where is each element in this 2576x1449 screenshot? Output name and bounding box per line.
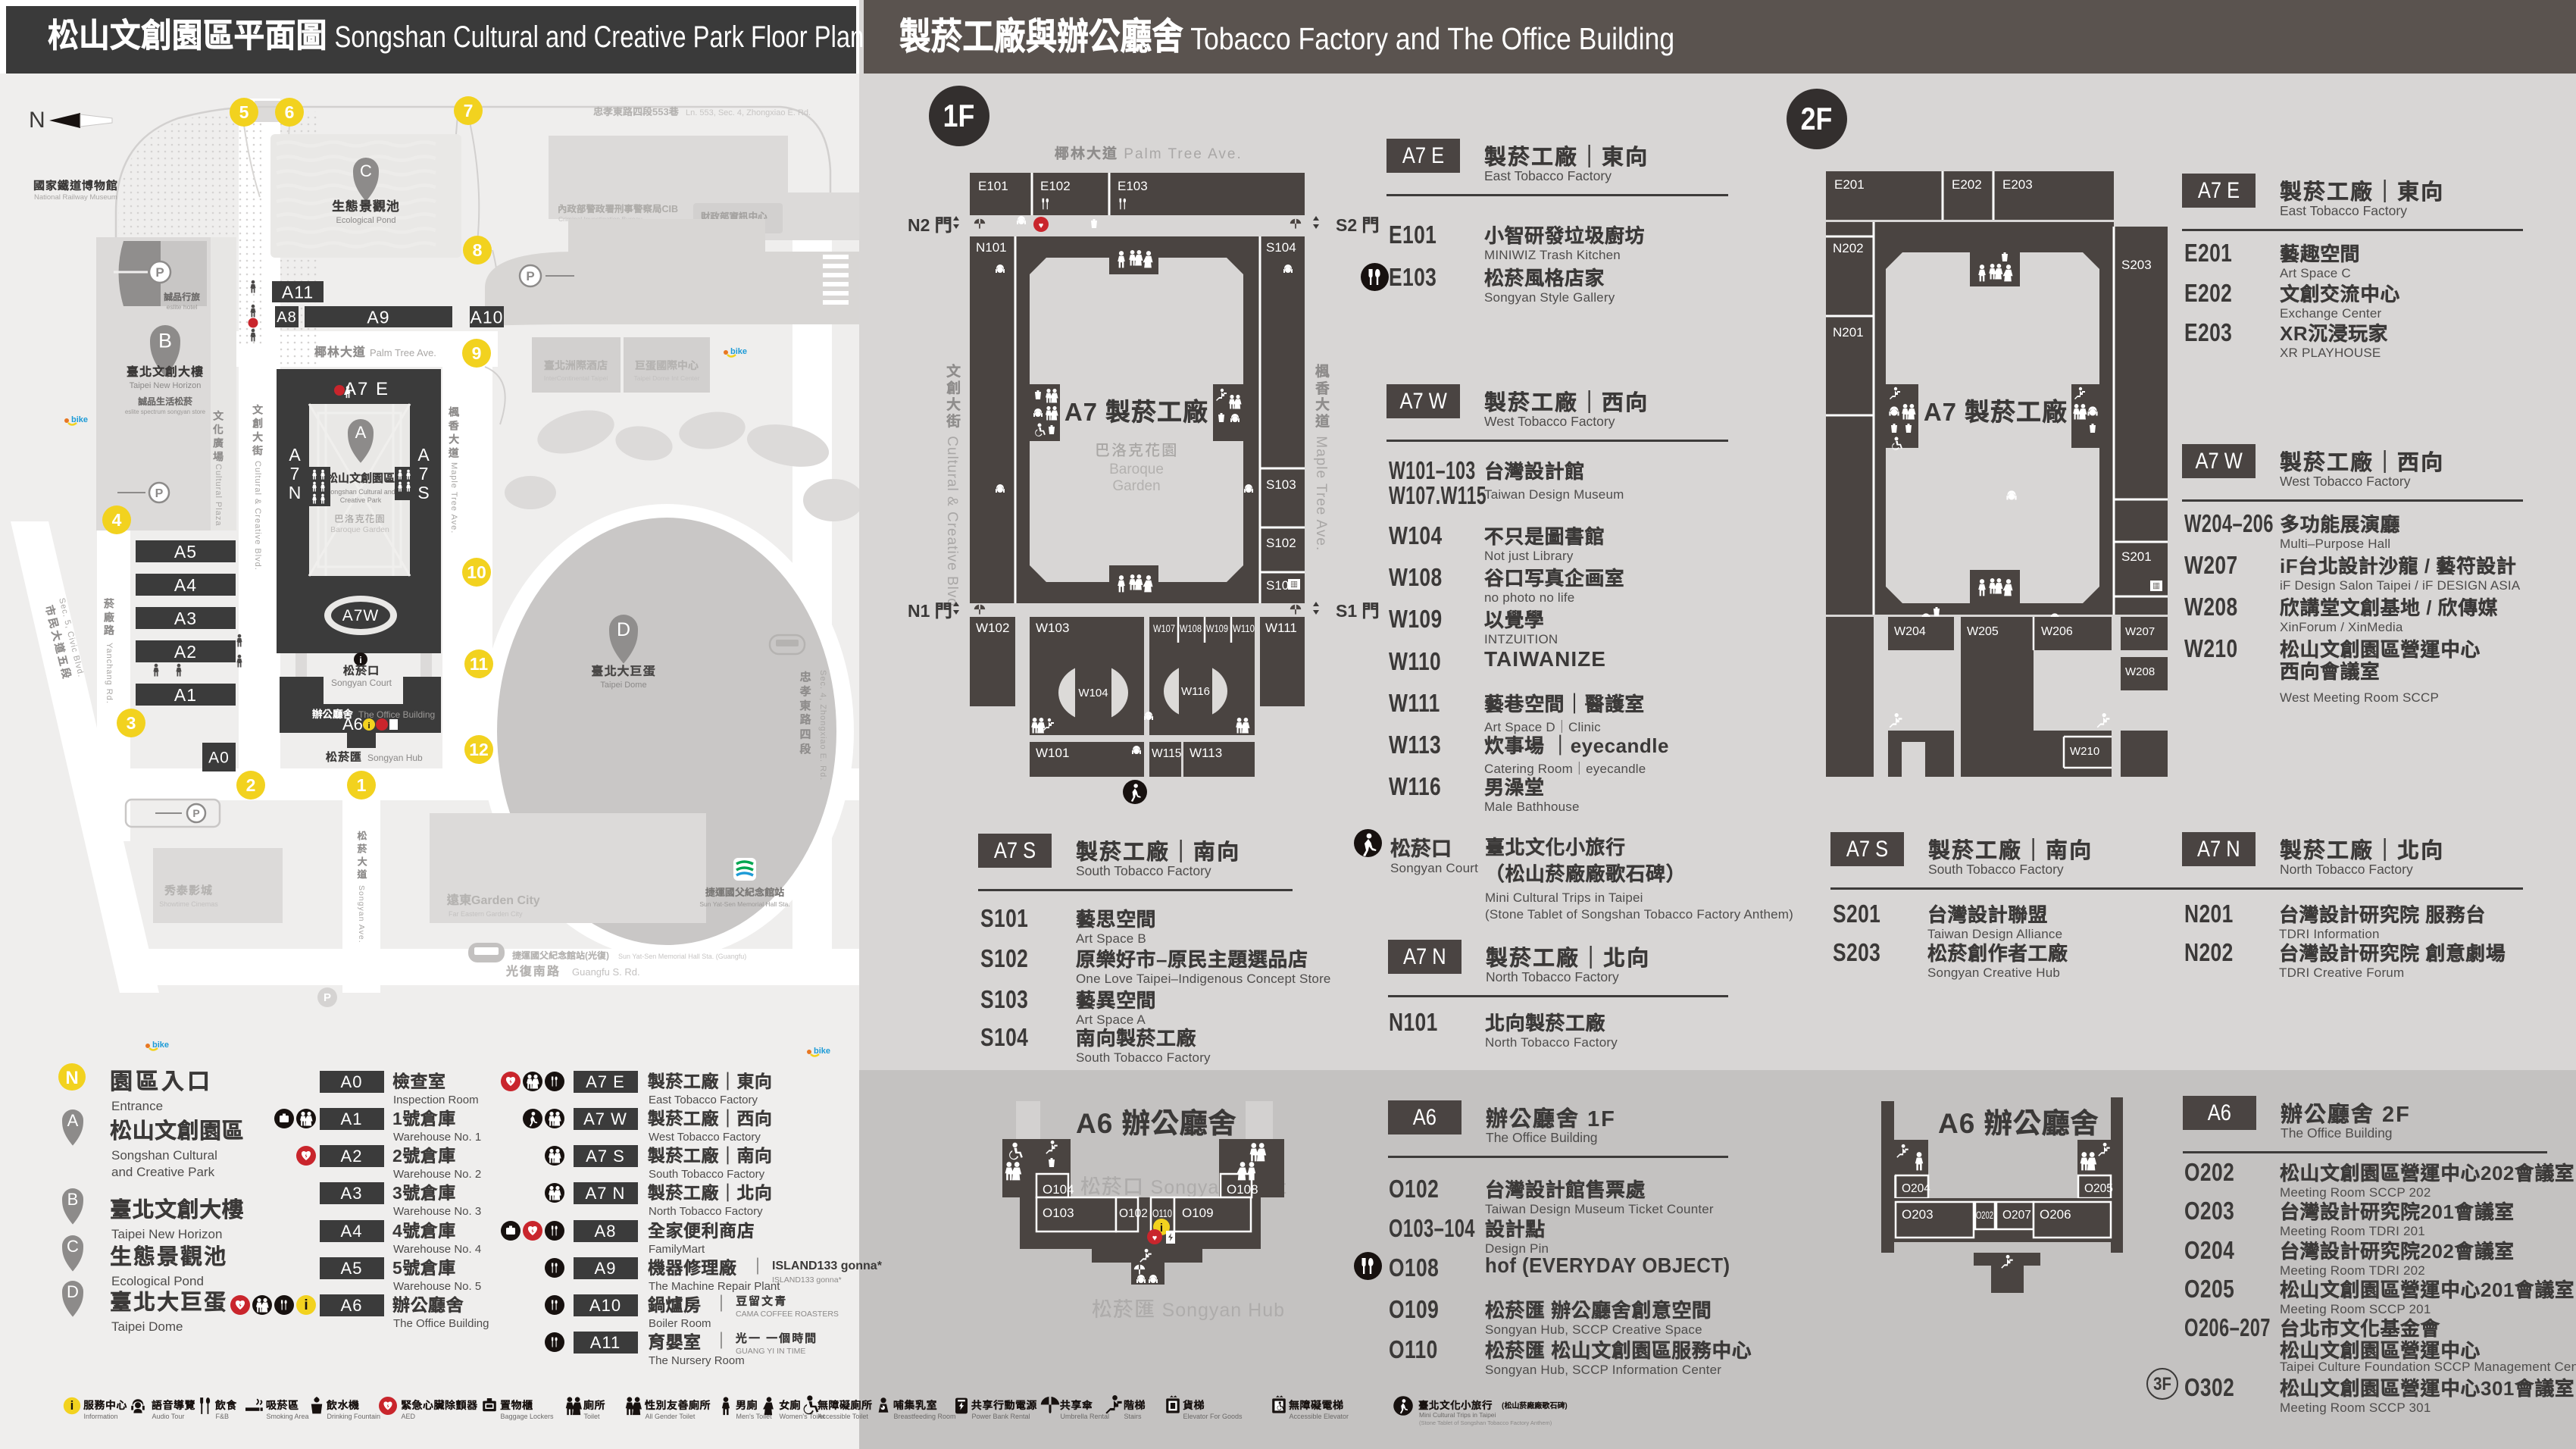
svg-text:E202: E202 <box>1952 177 1982 192</box>
svg-text:West Tobacco Factory: West Tobacco Factory <box>649 1131 761 1144</box>
svg-text:W207: W207 <box>2125 625 2155 638</box>
svg-text:製菸工廠｜南向: 製菸工廠｜南向 <box>647 1146 773 1166</box>
svg-text:Warehouse No. 5: Warehouse No. 5 <box>393 1280 481 1293</box>
svg-text:共享行動電源: 共享行動電源 <box>971 1399 1037 1411</box>
svg-text:North Tobacco Factory: North Tobacco Factory <box>649 1205 763 1218</box>
svg-text:S201: S201 <box>2121 549 2152 564</box>
svg-text:製菸工廠｜東向: 製菸工廠｜東向 <box>647 1072 773 1091</box>
svg-text:臺北大巨蛋: 臺北大巨蛋 <box>591 664 655 678</box>
svg-text:6: 6 <box>285 102 295 122</box>
svg-text:Boiler Room: Boiler Room <box>649 1317 711 1330</box>
svg-text:遠東Garden City: 遠東Garden City <box>447 893 540 907</box>
svg-text:E201: E201 <box>1834 177 1865 192</box>
svg-text:Maple Tree Ave.: Maple Tree Ave. <box>449 462 458 534</box>
svg-text:菸廠路: 菸廠路 <box>103 597 115 638</box>
svg-text:N201: N201 <box>1833 325 1864 340</box>
svg-text:The Office Building: The Office Building <box>358 709 435 720</box>
svg-text:Warehouse No. 1: Warehouse No. 1 <box>393 1131 481 1144</box>
svg-text:i: i <box>304 1297 308 1313</box>
svg-text:W109: W109 <box>1206 622 1228 634</box>
svg-text:A: A <box>417 445 430 465</box>
svg-text:Ecological Pond: Ecological Pond <box>336 216 396 225</box>
svg-text:N202: N202 <box>1833 241 1864 255</box>
svg-text:臺北文創大樓: 臺北文創大樓 <box>127 365 204 379</box>
svg-text:Baggage Lockers: Baggage Lockers <box>501 1413 555 1420</box>
svg-text:A9: A9 <box>367 307 389 327</box>
svg-text:A10: A10 <box>589 1296 621 1315</box>
svg-text:文化廣場: 文化廣場 <box>212 409 224 464</box>
svg-text:The Office Building: The Office Building <box>393 1317 489 1330</box>
svg-text:(Stone Tablet of Songshan Toba: (Stone Tablet of Songshan Tobacco Factor… <box>1419 1419 1552 1426</box>
svg-text:Taipei Dome: Taipei Dome <box>600 681 646 690</box>
svg-text:廁所: 廁所 <box>583 1399 605 1411</box>
svg-text:飲水機: 飲水機 <box>326 1399 360 1411</box>
svg-text:2號倉庫: 2號倉庫 <box>392 1146 456 1166</box>
svg-text:N: N <box>65 1068 78 1088</box>
svg-text:松菸大道: 松菸大道 <box>356 830 368 881</box>
svg-text:bike: bike <box>152 1041 169 1050</box>
svg-text:E103: E103 <box>1118 179 1148 193</box>
svg-text:忠孝東路四段: 忠孝東路四段 <box>799 670 812 756</box>
svg-text:Taipei Dome Int Center: Taipei Dome Int Center <box>634 374 700 382</box>
svg-text:Songshan Cultural and: Songshan Cultural and <box>326 488 395 496</box>
svg-text:Information: Information <box>84 1413 118 1420</box>
svg-text:巴洛克花園: 巴洛克花園 <box>334 514 386 524</box>
svg-text:Audio Tour: Audio Tour <box>152 1413 185 1420</box>
svg-text:豆留文青: 豆留文青 <box>736 1294 787 1308</box>
svg-text:National Railway Museum: National Railway Museum <box>34 193 117 202</box>
svg-text:製菸工廠｜西向: 製菸工廠｜西向 <box>647 1109 773 1128</box>
svg-text:巴洛克花園: 巴洛克花園 <box>1095 443 1178 459</box>
svg-text:性別友善廁所: 性別友善廁所 <box>644 1399 711 1411</box>
svg-text:Elevator For Goods: Elevator For Goods <box>1183 1413 1243 1420</box>
svg-text:The Machine Repair Plant: The Machine Repair Plant <box>649 1280 780 1293</box>
svg-text:Umbrella Rental: Umbrella Rental <box>1061 1413 1110 1420</box>
svg-text:bike: bike <box>730 347 747 356</box>
svg-text:哺集乳室: 哺集乳室 <box>893 1399 937 1411</box>
svg-text:椰林大道: 椰林大道 <box>314 345 366 359</box>
svg-text:W102: W102 <box>976 621 1009 635</box>
svg-text:松菸匯: 松菸匯 <box>326 750 362 764</box>
svg-text:B: B <box>67 1190 79 1209</box>
svg-text:忠孝東路四段553巷: 忠孝東路四段553巷 <box>593 106 680 117</box>
svg-text:臺北大巨蛋: 臺北大巨蛋 <box>110 1291 227 1315</box>
svg-text:Breastfeeding Room: Breastfeeding Room <box>894 1413 956 1420</box>
svg-text:共享傘: 共享傘 <box>1060 1399 1093 1411</box>
svg-text:Ecological Pond: Ecological Pond <box>111 1274 204 1288</box>
svg-text:A7 製菸工廠: A7 製菸工廠 <box>1064 398 1208 426</box>
svg-text:9: 9 <box>472 343 482 363</box>
svg-text:1號倉庫: 1號倉庫 <box>392 1109 456 1128</box>
svg-text:Warehouse No. 4: Warehouse No. 4 <box>393 1243 481 1256</box>
svg-text:ISLAND133 gonna*: ISLAND133 gonna* <box>772 1260 883 1272</box>
svg-text:East Tobacco Factory: East Tobacco Factory <box>649 1094 758 1106</box>
svg-text:Showtime Cinemas: Showtime Cinemas <box>159 900 218 908</box>
svg-text:P: P <box>324 991 331 1004</box>
svg-text:S203: S203 <box>2121 258 2152 272</box>
svg-text:W110: W110 <box>1233 622 1255 634</box>
svg-text:Garden: Garden <box>1112 478 1160 494</box>
svg-text:松山文創園區: 松山文創園區 <box>110 1119 244 1144</box>
svg-text:W208: W208 <box>2125 665 2155 678</box>
svg-text:育嬰室: 育嬰室 <box>648 1332 702 1352</box>
svg-text:檢查室: 檢查室 <box>392 1072 446 1091</box>
svg-text:Warehouse No. 3: Warehouse No. 3 <box>393 1205 481 1218</box>
svg-text:N: N <box>29 108 45 133</box>
svg-text:▦: ▦ <box>1290 581 1298 590</box>
svg-text:Songshan Cultural: Songshan Cultural <box>111 1148 217 1163</box>
svg-text:製菸工廠｜北向: 製菸工廠｜北向 <box>647 1183 773 1203</box>
svg-text:InterContinental Taipei: InterContinental Taipei <box>544 374 608 382</box>
svg-text:Entrance: Entrance <box>111 1099 163 1113</box>
svg-text:and Creative Park: and Creative Park <box>111 1165 215 1179</box>
svg-text:A8: A8 <box>277 309 296 326</box>
svg-text:N101: N101 <box>976 240 1007 255</box>
svg-text:無障礙電梯: 無障礙電梯 <box>1289 1399 1344 1411</box>
svg-text:Ln. 553, Sec. 4, Zhongxiao E.: Ln. 553, Sec. 4, Zhongxiao E. Rd. <box>686 108 811 117</box>
svg-text:A2: A2 <box>341 1147 363 1166</box>
svg-text:W103: W103 <box>1036 621 1069 635</box>
svg-text:P: P <box>155 487 164 500</box>
svg-text:P: P <box>192 807 199 819</box>
svg-text:A7W: A7W <box>342 607 380 624</box>
svg-text:All Gender Toilet: All Gender Toilet <box>646 1413 696 1420</box>
svg-text:生態景觀池: 生態景觀池 <box>332 199 400 214</box>
svg-text:A9: A9 <box>595 1259 617 1278</box>
svg-text:女廁: 女廁 <box>779 1399 801 1411</box>
svg-text:1: 1 <box>357 775 367 795</box>
svg-text:鍋爐房: 鍋爐房 <box>647 1295 702 1315</box>
svg-text:捷運國父紀念館站(光復): 捷運國父紀念館站(光復) <box>512 950 609 961</box>
svg-text:5號倉庫: 5號倉庫 <box>392 1258 456 1278</box>
svg-text:A: A <box>289 445 301 465</box>
svg-text:內政部警政署刑事警察局CIB: 內政部警政署刑事警察局CIB <box>558 203 678 214</box>
svg-text:松菸口: 松菸口 <box>343 664 380 678</box>
svg-text:A4: A4 <box>174 575 197 595</box>
svg-text:Inspection Room: Inspection Room <box>393 1094 479 1106</box>
svg-text:A7 W: A7 W <box>583 1109 627 1128</box>
svg-text:巨蛋國際中心: 巨蛋國際中心 <box>635 359 699 371</box>
svg-text:W116: W116 <box>1181 685 1210 698</box>
svg-text:W204: W204 <box>1894 625 1926 638</box>
svg-text:FamilyMart: FamilyMart <box>649 1243 705 1256</box>
svg-text:N: N <box>289 483 302 502</box>
svg-text:The Nursery Room: The Nursery Room <box>649 1354 745 1367</box>
svg-text:S104: S104 <box>1266 240 1296 255</box>
svg-text:Taipei Dome: Taipei Dome <box>111 1319 183 1334</box>
svg-text:園區入口: 園區入口 <box>110 1069 213 1094</box>
svg-text:A7 S: A7 S <box>586 1147 625 1166</box>
svg-text:3號倉庫: 3號倉庫 <box>392 1183 456 1203</box>
svg-text:4: 4 <box>112 510 122 530</box>
svg-text:A5: A5 <box>341 1259 363 1278</box>
svg-text:A1: A1 <box>174 685 197 705</box>
svg-text:Songyan Court: Songyan Court <box>331 678 392 688</box>
svg-text:男廁: 男廁 <box>735 1399 758 1411</box>
svg-text:置物櫃: 置物櫃 <box>500 1399 533 1411</box>
svg-text:Guangfu S. Rd.: Guangfu S. Rd. <box>572 966 640 978</box>
svg-text:階梯: 階梯 <box>1124 1399 1146 1411</box>
svg-text:i: i <box>359 655 361 665</box>
svg-text:♥: ♥ <box>1039 221 1044 230</box>
svg-text:5: 5 <box>239 102 249 122</box>
svg-text:Creative Park: Creative Park <box>340 496 382 504</box>
svg-text:A6: A6 <box>341 1296 363 1315</box>
svg-text:｜: ｜ <box>749 1257 766 1276</box>
svg-text:誠品生活松菸: 誠品生活松菸 <box>137 396 193 407</box>
svg-text:i: i <box>70 1398 74 1413</box>
svg-text:W206: W206 <box>2041 625 2073 638</box>
svg-text:i: i <box>367 721 370 731</box>
svg-text:A11: A11 <box>282 282 314 302</box>
svg-text:GUANG YI IN TIME: GUANG YI IN TIME <box>736 1347 805 1356</box>
svg-text:Cultural Plaza: Cultural Plaza <box>214 464 223 526</box>
svg-text:Yanchang Rd.: Yanchang Rd. <box>105 643 114 704</box>
svg-text:A: A <box>67 1111 79 1130</box>
svg-text:A10: A10 <box>470 307 504 327</box>
svg-text:W104: W104 <box>1078 687 1108 699</box>
svg-text:eslite spectrum songyan store: eslite spectrum songyan store <box>125 408 206 415</box>
svg-text:辦公廳舍: 辦公廳舍 <box>392 1295 464 1315</box>
svg-text:S102: S102 <box>1266 536 1296 550</box>
svg-text:Palm Tree Ave.: Palm Tree Ave. <box>370 347 436 358</box>
svg-text:國家鐵道博物館: 國家鐵道博物館 <box>33 179 118 192</box>
svg-text:F&B: F&B <box>216 1413 230 1420</box>
svg-text:A4: A4 <box>341 1222 363 1241</box>
svg-text:服務中心: 服務中心 <box>83 1399 127 1411</box>
svg-text:Songyan Ave.: Songyan Ave. <box>357 885 366 944</box>
svg-text:飲食: 飲食 <box>214 1399 237 1411</box>
svg-text:W111: W111 <box>1265 621 1297 635</box>
svg-text:W210: W210 <box>2070 745 2099 758</box>
svg-text:W115: W115 <box>1152 747 1181 760</box>
svg-text:A3: A3 <box>174 609 197 628</box>
svg-text:臺北文創大樓: 臺北文創大樓 <box>110 1197 244 1222</box>
svg-text:文創大街: 文創大街 <box>252 403 264 458</box>
svg-text:緊急心臟除顫器: 緊急心臟除顫器 <box>401 1399 478 1411</box>
svg-text:11: 11 <box>470 654 489 674</box>
svg-text:7: 7 <box>290 464 300 484</box>
svg-text:7: 7 <box>464 101 474 120</box>
svg-text:7: 7 <box>419 464 429 484</box>
svg-text:C: C <box>360 161 372 180</box>
svg-text:｜: ｜ <box>713 1332 730 1350</box>
svg-text:Songyan Hub: Songyan Hub <box>367 753 423 763</box>
svg-text:E101: E101 <box>978 179 1008 193</box>
svg-text:生態景觀池: 生態景觀池 <box>110 1244 227 1269</box>
svg-text:｜: ｜ <box>713 1294 730 1313</box>
svg-text:Taipei New Horizon: Taipei New Horizon <box>111 1227 222 1241</box>
svg-text:楓香大道: 楓香大道 <box>448 405 460 460</box>
svg-text:Drinking Fountain: Drinking Fountain <box>327 1413 381 1420</box>
svg-text:貨梯: 貨梯 <box>1183 1399 1205 1411</box>
svg-text:無障礙廁所: 無障礙廁所 <box>818 1399 873 1411</box>
svg-text:機器修理廠: 機器修理廠 <box>647 1258 737 1278</box>
svg-text:Sun Yat-Sen Memorial Hall Sta.: Sun Yat-Sen Memorial Hall Sta. <box>699 900 789 908</box>
svg-text:臺北洲際酒店: 臺北洲際酒店 <box>544 359 608 371</box>
svg-text:(松山菸廠廠歌石碑): (松山菸廠廠歌石碑) <box>1502 1400 1568 1410</box>
svg-text:South Tobacco Factory: South Tobacco Factory <box>649 1168 765 1181</box>
svg-text:A11: A11 <box>590 1333 621 1352</box>
svg-text:Accessible Elevator: Accessible Elevator <box>1290 1413 1349 1420</box>
svg-text:W101: W101 <box>1036 746 1069 760</box>
svg-text:4號倉庫: 4號倉庫 <box>392 1221 456 1241</box>
svg-text:P: P <box>155 265 164 280</box>
svg-text:A1: A1 <box>341 1109 363 1128</box>
svg-text:松山文創園區: 松山文創園區 <box>327 471 395 485</box>
svg-text:Power Bank Rental: Power Bank Rental <box>972 1413 1030 1420</box>
svg-text:A7 製菸工廠: A7 製菸工廠 <box>1924 398 2068 426</box>
svg-text:8: 8 <box>473 240 483 260</box>
svg-text:S103: S103 <box>1266 477 1296 492</box>
svg-text:光復南路: 光復南路 <box>505 964 561 978</box>
svg-text:3: 3 <box>127 713 136 733</box>
svg-text:A7 E: A7 E <box>586 1072 625 1091</box>
svg-text:Taipei New Horizon: Taipei New Horizon <box>130 381 202 390</box>
svg-text:A0: A0 <box>208 750 230 767</box>
svg-text:S: S <box>417 483 429 502</box>
svg-text:Far Eastern Garden City: Far Eastern Garden City <box>449 910 523 918</box>
svg-text:W107: W107 <box>1153 622 1175 634</box>
svg-text:A7 E: A7 E <box>344 379 389 399</box>
svg-text:Baroque: Baroque <box>1109 462 1164 477</box>
svg-text:W113: W113 <box>1190 746 1222 760</box>
svg-text:bike: bike <box>814 1047 830 1056</box>
svg-text:bike: bike <box>71 415 88 424</box>
svg-text:Toilet: Toilet <box>584 1413 601 1420</box>
svg-text:Cultural & Creative Blvd.: Cultural & Creative Blvd. <box>253 461 262 571</box>
svg-text:吸菸區: 吸菸區 <box>266 1399 299 1411</box>
svg-text:A: A <box>355 423 367 442</box>
svg-text:Baroque Garden: Baroque Garden <box>330 525 389 534</box>
svg-text:12: 12 <box>469 740 489 759</box>
svg-text:CAMA COFFEE ROASTERS: CAMA COFFEE ROASTERS <box>736 1310 839 1319</box>
svg-text:B: B <box>158 330 172 352</box>
svg-text:全家便利商店: 全家便利商店 <box>648 1221 755 1241</box>
svg-text:A6: A6 <box>342 715 363 734</box>
svg-text:W108: W108 <box>1180 622 1202 634</box>
svg-text:A2: A2 <box>174 642 197 662</box>
svg-text:Sun Yat-Sen Memorial Hall Sta.: Sun Yat-Sen Memorial Hall Sta. (Guangfu) <box>618 953 746 960</box>
svg-text:10: 10 <box>467 562 486 582</box>
svg-text:A8: A8 <box>595 1222 617 1241</box>
svg-text:秀泰影城: 秀泰影城 <box>164 884 213 897</box>
svg-text:eslite hotel: eslite hotel <box>167 303 198 311</box>
svg-text:捷運國父紀念館站: 捷運國父紀念館站 <box>705 887 785 898</box>
svg-text:Smoking Area: Smoking Area <box>267 1413 309 1420</box>
svg-text:P: P <box>526 269 534 283</box>
svg-text:Accessible Toilet: Accessible Toilet <box>818 1413 869 1420</box>
svg-text:2: 2 <box>246 775 256 795</box>
svg-text:A0: A0 <box>341 1072 363 1091</box>
svg-text:D: D <box>617 619 630 640</box>
svg-text:ISLAND133 gonna*: ISLAND133 gonna* <box>772 1275 842 1285</box>
svg-text:臺北文化小旅行: 臺北文化小旅行 <box>1418 1399 1493 1411</box>
svg-text:E203: E203 <box>2002 177 2033 192</box>
svg-text:D: D <box>67 1282 79 1301</box>
svg-text:誠品行旅: 誠品行旅 <box>163 291 200 302</box>
svg-text:E102: E102 <box>1040 179 1071 193</box>
svg-text:Stairs: Stairs <box>1124 1413 1143 1420</box>
svg-text:Sec. 4, Zhongxiao E. Rd.: Sec. 4, Zhongxiao E. Rd. <box>818 670 827 781</box>
svg-text:光一 一個時間: 光一 一個時間 <box>735 1332 818 1345</box>
svg-text:A3: A3 <box>341 1184 363 1203</box>
svg-text:語音導覽: 語音導覽 <box>152 1399 195 1411</box>
svg-text:A7 N: A7 N <box>586 1184 626 1203</box>
svg-text:Warehouse No. 2: Warehouse No. 2 <box>393 1168 481 1181</box>
svg-text:A5: A5 <box>174 542 197 562</box>
svg-text:W205: W205 <box>1967 625 1999 638</box>
svg-text:AED: AED <box>402 1413 416 1420</box>
svg-text:C: C <box>67 1237 79 1256</box>
svg-text:Mini Cultural Trips in Taipei: Mini Cultural Trips in Taipei <box>1419 1411 1496 1419</box>
svg-text:▦: ▦ <box>2152 583 2160 591</box>
